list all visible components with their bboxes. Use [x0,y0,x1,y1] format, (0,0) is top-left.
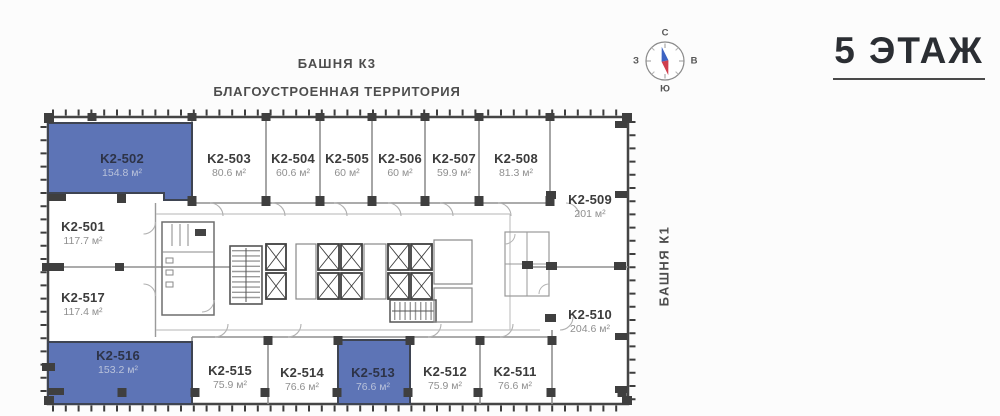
unit-label-k2-513[interactable]: K2-51376.6 м² [351,366,395,393]
staircase [390,300,436,322]
unit-label-k2-511: K2-51176.6 м² [493,365,536,392]
unit-label-k2-515: K2-51575.9 м² [208,364,252,391]
floor-title-underline [833,78,985,80]
unit-label-k2-503: K2-50380.6 м² [207,152,251,179]
compass-west-label: З [633,56,639,67]
compass-south-label: Ю [660,84,670,95]
territory-label: БЛАГОУСТРОЕННАЯ ТЕРРИТОРИЯ [213,84,460,99]
compass [646,42,684,80]
floor-title: 5 ЭТАЖ [834,30,984,72]
unit-label-k2-505: K2-50560 м² [325,152,369,179]
tower-k3-label: БАШНЯ К3 [298,56,376,71]
tower-k1-label: БАШНЯ К1 [657,226,672,307]
unit-label-k2-517: K2-517117.4 м² [61,291,105,318]
unit-label-k2-514: K2-51476.6 м² [280,366,324,393]
staircase [230,246,262,304]
unit-label-k2-516[interactable]: K2-516153.2 м² [96,349,140,376]
unit-label-k2-510: K2-510204.6 м² [568,308,612,335]
compass-north-label: С [662,28,669,39]
unit-label-k2-512: K2-51275.9 м² [423,365,467,392]
unit-label-k2-501: K2-501117.7 м² [61,220,105,247]
unit-label-k2-507: K2-50759.9 м² [432,152,476,179]
compass-east-label: В [691,56,698,67]
unit-label-k2-502[interactable]: K2-502154.8 м² [100,152,144,179]
unit-label-k2-504: K2-50460.6 м² [271,152,315,179]
floor-plan-page: БАШНЯ К3 БЛАГОУСТРОЕННАЯ ТЕРРИТОРИЯ 5 ЭТ… [0,0,1000,416]
unit-label-k2-506: K2-50660 м² [378,152,422,179]
unit-label-k2-509: K2-509201 м² [568,193,612,220]
unit-label-k2-508: K2-50881.3 м² [494,152,538,179]
